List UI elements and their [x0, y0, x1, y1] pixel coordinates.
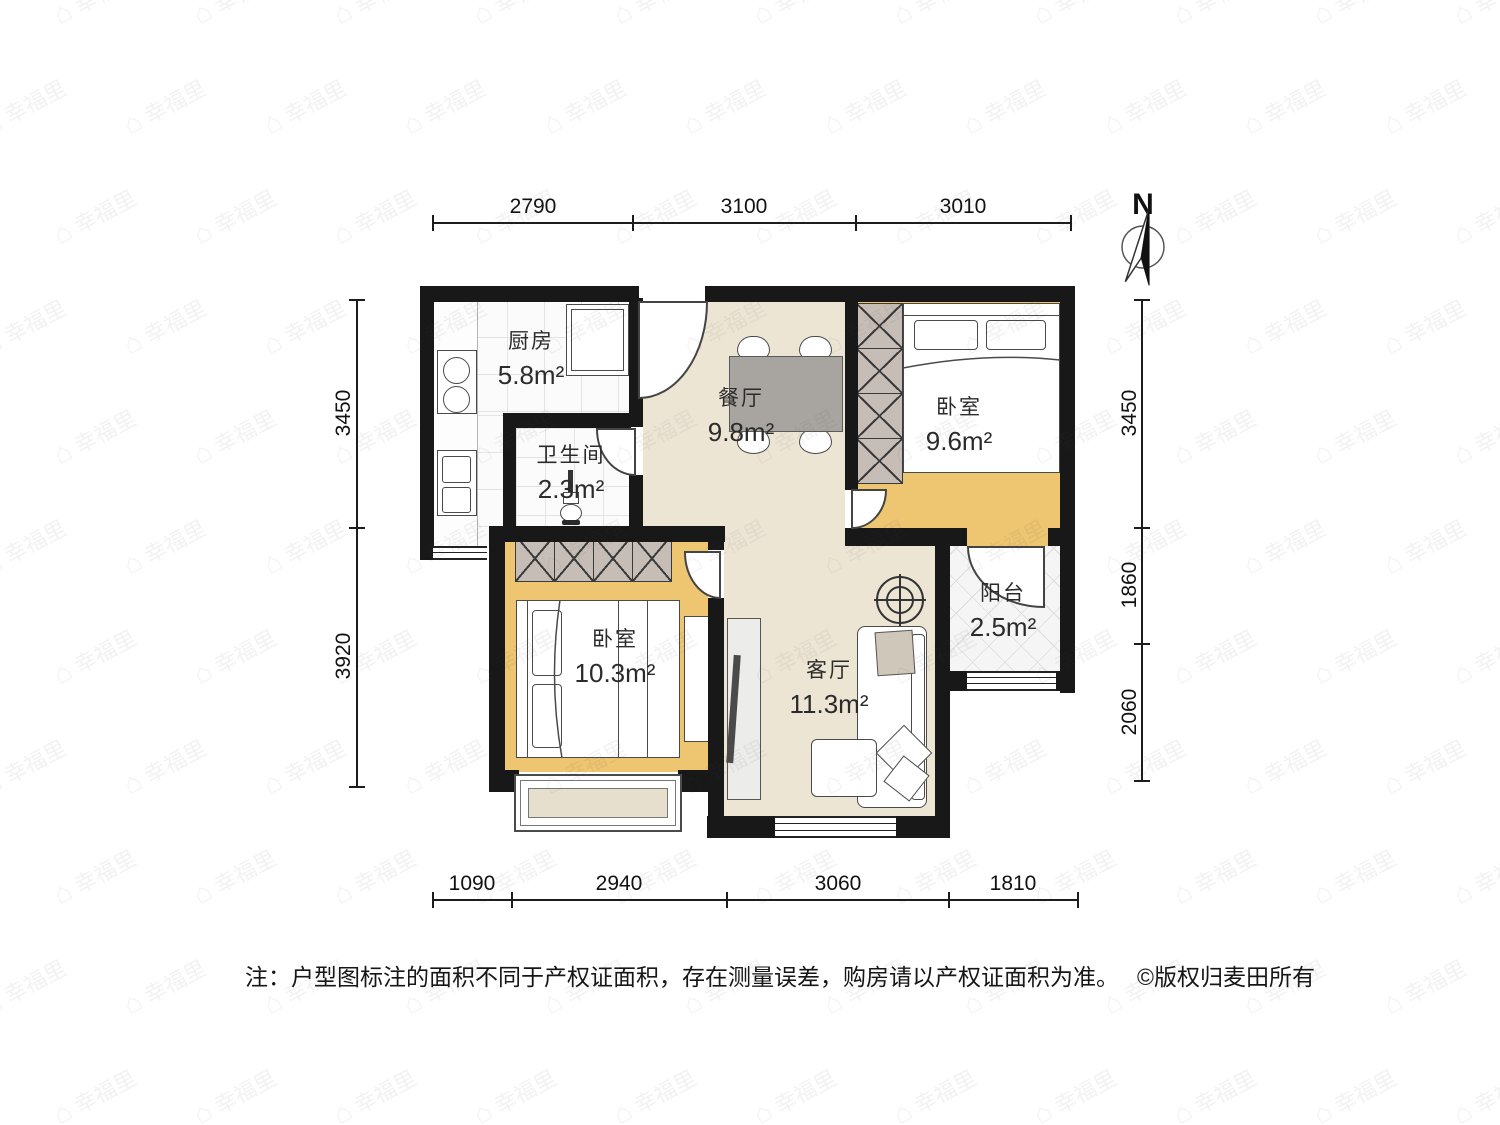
- watermark: ⌂幸福里: [398, 71, 492, 141]
- room-label-living: 客厅 11.3m²: [790, 654, 869, 720]
- watermark: ⌂幸福里: [118, 291, 212, 361]
- watermark: ⌂幸福里: [328, 841, 422, 911]
- dim-value: 3010: [940, 195, 987, 219]
- watermark: ⌂幸福里: [1448, 181, 1500, 251]
- watermark-logo-icon: ⌂: [1309, 437, 1337, 470]
- sink-basin-icon: [442, 487, 471, 513]
- watermark-text: 幸福里: [68, 841, 141, 900]
- room-label-balcony: 阳台 2.5m²: [970, 577, 1036, 643]
- watermark: ⌂幸福里: [608, 181, 702, 251]
- watermark: ⌂幸福里: [48, 401, 142, 471]
- pillow-icon: [532, 610, 562, 676]
- watermark-logo-icon: ⌂: [1099, 327, 1127, 360]
- compass: N: [1122, 188, 1164, 285]
- watermark-text: 幸福里: [1118, 291, 1191, 350]
- watermark-text: 幸福里: [1468, 401, 1500, 460]
- room-name: 餐厅: [718, 382, 764, 412]
- watermark-logo-icon: ⌂: [119, 987, 147, 1020]
- watermark-text: 幸福里: [208, 0, 281, 20]
- watermark: ⌂幸福里: [1168, 401, 1262, 471]
- watermark-logo-icon: ⌂: [1309, 217, 1337, 250]
- wall: [678, 770, 709, 792]
- wall: [707, 816, 775, 838]
- watermark: ⌂幸福里: [538, 71, 632, 141]
- room-label-bathroom: 卫生间 2.3m²: [537, 439, 606, 505]
- dim-line-left: [356, 300, 358, 788]
- watermark-text: 幸福里: [768, 1061, 841, 1120]
- dim-value: 1090: [449, 872, 496, 896]
- dim-value: 3450: [332, 390, 356, 437]
- watermark-logo-icon: ⌂: [0, 767, 7, 800]
- watermark-logo-icon: ⌂: [49, 877, 77, 910]
- watermark-logo-icon: ⌂: [469, 0, 497, 29]
- room-label-bedroom-top: 卧室 9.6m²: [926, 391, 992, 457]
- watermark: ⌂幸福里: [0, 71, 71, 141]
- watermark-text: 幸福里: [348, 841, 421, 900]
- watermark: ⌂幸福里: [1238, 731, 1332, 801]
- watermark-text: 幸福里: [0, 621, 1, 680]
- watermark-text: 幸福里: [278, 291, 351, 350]
- dim-line-bottom: [432, 899, 1079, 901]
- watermark: ⌂幸福里: [1308, 181, 1402, 251]
- dim-tick: [432, 215, 434, 231]
- watermark: ⌂幸福里: [0, 621, 1, 691]
- watermark: ⌂幸福里: [1378, 291, 1472, 361]
- watermark: ⌂幸福里: [748, 0, 842, 31]
- room-area: 10.3m²: [575, 658, 656, 689]
- watermark-text: 幸福里: [1048, 181, 1121, 240]
- watermark-text: 幸福里: [0, 0, 1, 20]
- watermark: ⌂幸福里: [258, 731, 352, 801]
- watermark-logo-icon: ⌂: [1449, 217, 1477, 250]
- watermark-text: 幸福里: [348, 1061, 421, 1120]
- watermark-logo-icon: ⌂: [1169, 877, 1197, 910]
- wall: [845, 298, 858, 490]
- watermark: ⌂幸福里: [328, 1061, 422, 1125]
- living-window: [775, 816, 896, 838]
- watermark-logo-icon: ⌂: [1449, 877, 1477, 910]
- wall: [503, 413, 516, 533]
- disclaimer-note: 注：户型图标注的面积不同于产权证面积，存在测量误差，购房请以产权证面积为准。©版…: [245, 958, 1315, 992]
- watermark: ⌂幸福里: [1308, 841, 1402, 911]
- watermark: ⌂幸福里: [1448, 1061, 1500, 1125]
- watermark: ⌂幸福里: [1448, 401, 1500, 471]
- watermark: ⌂幸福里: [48, 621, 142, 691]
- wall: [845, 528, 967, 546]
- watermark-logo-icon: ⌂: [749, 877, 777, 910]
- watermark: ⌂幸福里: [608, 1061, 702, 1125]
- dim-value: 2060: [1118, 689, 1142, 736]
- watermark: ⌂幸福里: [188, 401, 282, 471]
- watermark: ⌂幸福里: [1238, 511, 1332, 581]
- watermark-text: 幸福里: [0, 951, 71, 1010]
- watermark-logo-icon: ⌂: [609, 1097, 637, 1125]
- watermark: ⌂幸福里: [1308, 621, 1402, 691]
- dim-tick: [632, 215, 634, 231]
- watermark-text: 幸福里: [278, 511, 351, 570]
- watermark-text: 幸福里: [1328, 621, 1401, 680]
- watermark-logo-icon: ⌂: [1449, 1097, 1477, 1125]
- watermark-text: 幸福里: [0, 1061, 1, 1120]
- watermark-logo-icon: ⌂: [0, 987, 7, 1020]
- watermark-text: 幸福里: [0, 291, 71, 350]
- watermark-logo-icon: ⌂: [1379, 107, 1407, 140]
- watermark-logo-icon: ⌂: [329, 0, 357, 29]
- watermark-text: 幸福里: [0, 511, 71, 570]
- dim-value: 3060: [815, 872, 862, 896]
- watermark-logo-icon: ⌂: [1239, 547, 1267, 580]
- watermark-logo-icon: ⌂: [539, 107, 567, 140]
- watermark-logo-icon: ⌂: [819, 107, 847, 140]
- watermark: ⌂幸福里: [958, 731, 1052, 801]
- sink-basin-icon: [442, 456, 471, 483]
- bed-headboard: [903, 303, 1060, 316]
- watermark-text: 幸福里: [1398, 511, 1471, 570]
- wardrobe-cell: [554, 535, 594, 582]
- watermark-text: 幸福里: [348, 401, 421, 460]
- watermark: ⌂幸福里: [398, 731, 492, 801]
- watermark: ⌂幸福里: [188, 0, 282, 31]
- watermark-logo-icon: ⌂: [259, 327, 287, 360]
- watermark-text: 幸福里: [348, 621, 421, 680]
- room-name: 卧室: [592, 623, 638, 653]
- bed-headboard: [516, 600, 528, 758]
- watermark: ⌂幸福里: [188, 841, 282, 911]
- watermark: ⌂幸福里: [1098, 731, 1192, 801]
- watermark: ⌂幸福里: [48, 181, 142, 251]
- watermark-logo-icon: ⌂: [49, 0, 77, 29]
- watermark-logo-icon: ⌂: [1029, 1097, 1057, 1125]
- watermark-text: 幸福里: [908, 841, 981, 900]
- toilet-base-icon: [562, 520, 580, 525]
- watermark-text: 幸福里: [1398, 291, 1471, 350]
- watermark: ⌂幸福里: [1448, 621, 1500, 691]
- wardrobe-cell: [856, 348, 903, 394]
- watermark: ⌂幸福里: [1168, 1061, 1262, 1125]
- watermark-logo-icon: ⌂: [749, 1097, 777, 1125]
- watermark-logo-icon: ⌂: [1449, 437, 1477, 470]
- room-label-bedroom-left: 卧室 10.3m²: [575, 623, 656, 689]
- watermark-text: 幸福里: [1258, 511, 1331, 570]
- dim-tick: [1134, 527, 1150, 529]
- watermark: ⌂幸福里: [1378, 951, 1472, 1021]
- watermark-text: 幸福里: [1468, 181, 1500, 240]
- watermark-text: 幸福里: [1118, 71, 1191, 130]
- watermark-logo-icon: ⌂: [1169, 0, 1197, 29]
- watermark: ⌂幸福里: [1308, 1061, 1402, 1125]
- watermark-logo-icon: ⌂: [0, 107, 7, 140]
- watermark-text: 幸福里: [138, 291, 211, 350]
- watermark: ⌂幸福里: [0, 731, 71, 801]
- watermark-text: 幸福里: [68, 401, 141, 460]
- watermark-logo-icon: ⌂: [189, 1097, 217, 1125]
- dim-value: 3100: [721, 195, 768, 219]
- dim-tick: [511, 892, 513, 908]
- room-area: 11.3m²: [790, 689, 869, 720]
- watermark-logo-icon: ⌂: [469, 1097, 497, 1125]
- kitchen-window: [433, 546, 487, 560]
- watermark-logo-icon: ⌂: [399, 107, 427, 140]
- watermark: ⌂幸福里: [328, 181, 422, 251]
- watermark: ⌂幸福里: [118, 731, 212, 801]
- wall: [708, 598, 724, 832]
- watermark-logo-icon: ⌂: [1379, 327, 1407, 360]
- watermark-logo-icon: ⌂: [189, 657, 217, 690]
- watermark: ⌂幸福里: [188, 181, 282, 251]
- wall: [629, 298, 643, 427]
- watermark-logo-icon: ⌂: [679, 107, 707, 140]
- watermark-text: 幸福里: [908, 0, 981, 20]
- watermark-logo-icon: ⌂: [49, 657, 77, 690]
- watermark-text: 幸福里: [1258, 291, 1331, 350]
- watermark: ⌂幸福里: [608, 0, 702, 31]
- watermark-text: 幸福里: [1398, 731, 1471, 790]
- watermark-text: 幸福里: [68, 181, 141, 240]
- watermark-logo-icon: ⌂: [329, 1097, 357, 1125]
- dim-tick: [1070, 215, 1072, 231]
- wall: [503, 526, 725, 542]
- watermark-text: 幸福里: [208, 1061, 281, 1120]
- watermark-text: 幸福里: [208, 401, 281, 460]
- watermark-logo-icon: ⌂: [889, 877, 917, 910]
- watermark: ⌂幸福里: [118, 511, 212, 581]
- compass-needle-west: [1125, 207, 1149, 284]
- watermark-text: 幸福里: [0, 71, 71, 130]
- watermark-logo-icon: ⌂: [1099, 767, 1127, 800]
- watermark-text: 幸福里: [1048, 841, 1121, 900]
- watermark-logo-icon: ⌂: [609, 0, 637, 29]
- watermark-text: 幸福里: [138, 951, 211, 1010]
- watermark-logo-icon: ⌂: [329, 437, 357, 470]
- watermark-logo-icon: ⌂: [1029, 0, 1057, 29]
- watermark: ⌂幸福里: [1448, 841, 1500, 911]
- wardrobe-cell: [856, 393, 903, 439]
- watermark-logo-icon: ⌂: [1309, 657, 1337, 690]
- watermark-logo-icon: ⌂: [1449, 657, 1477, 690]
- compass-needle-east: [1137, 208, 1161, 285]
- wall: [935, 671, 967, 691]
- watermark-text: 幸福里: [698, 71, 771, 130]
- watermark-text: 幸福里: [978, 731, 1051, 790]
- watermark-text: 幸福里: [1188, 0, 1261, 20]
- watermark-text: 幸福里: [348, 181, 421, 240]
- pillow-icon: [914, 320, 978, 350]
- room-name: 厨房: [508, 325, 554, 355]
- watermark-text: 幸福里: [1398, 71, 1471, 130]
- watermark-logo-icon: ⌂: [959, 767, 987, 800]
- watermark: ⌂幸福里: [1308, 401, 1402, 471]
- watermark: ⌂幸福里: [0, 181, 1, 251]
- watermark: ⌂幸福里: [1028, 1061, 1122, 1125]
- watermark-text: 幸福里: [768, 0, 841, 20]
- watermark-text: 幸福里: [68, 1061, 141, 1120]
- watermark-text: 幸福里: [488, 841, 561, 900]
- watermark-logo-icon: ⌂: [1449, 0, 1477, 29]
- watermark-logo-icon: ⌂: [119, 107, 147, 140]
- watermark: ⌂幸福里: [1028, 181, 1122, 251]
- watermark-logo-icon: ⌂: [49, 437, 77, 470]
- wardrobe-cell: [515, 535, 555, 582]
- dim-tick: [1134, 780, 1150, 782]
- watermark-logo-icon: ⌂: [1239, 767, 1267, 800]
- watermark: ⌂幸福里: [188, 621, 282, 691]
- stove-burner-icon: [443, 386, 470, 413]
- watermark: ⌂幸福里: [1378, 731, 1472, 801]
- watermark-text: 幸福里: [628, 1061, 701, 1120]
- watermark-logo-icon: ⌂: [1309, 877, 1337, 910]
- watermark-logo-icon: ⌂: [1169, 217, 1197, 250]
- room-area: 2.5m²: [970, 612, 1036, 643]
- watermark: ⌂幸福里: [1098, 71, 1192, 141]
- watermark: ⌂幸福里: [818, 71, 912, 141]
- copyright-text: ©版权归麦田所有: [1137, 964, 1315, 990]
- dim-tick: [349, 299, 365, 301]
- watermark-text: 幸福里: [208, 841, 281, 900]
- wall: [489, 526, 505, 792]
- wardrobe-cell: [856, 438, 903, 484]
- watermark-text: 幸福里: [488, 1061, 561, 1120]
- watermark-logo-icon: ⌂: [189, 0, 217, 29]
- wall: [503, 413, 631, 428]
- watermark: ⌂幸福里: [0, 401, 1, 471]
- watermark-text: 幸福里: [1258, 71, 1331, 130]
- watermark-logo-icon: ⌂: [1239, 107, 1267, 140]
- watermark: ⌂幸福里: [1028, 0, 1122, 31]
- watermark-text: 幸福里: [418, 71, 491, 130]
- watermark: ⌂幸福里: [1378, 511, 1472, 581]
- watermark-text: 幸福里: [278, 731, 351, 790]
- watermark-text: 幸福里: [138, 731, 211, 790]
- watermark-text: 幸福里: [1398, 951, 1471, 1010]
- watermark-text: 幸福里: [628, 0, 701, 20]
- watermark-text: 幸福里: [768, 181, 841, 240]
- balcony-threshold: [965, 528, 1048, 546]
- watermark-text: 幸福里: [1048, 0, 1121, 20]
- watermark-text: 幸福里: [838, 71, 911, 130]
- watermark-logo-icon: ⌂: [189, 877, 217, 910]
- wardrobe-cell: [632, 535, 672, 582]
- watermark-text: 幸福里: [488, 0, 561, 20]
- room-area: 9.8m²: [708, 417, 774, 448]
- watermark-text: 幸福里: [348, 0, 421, 20]
- watermark-text: 幸福里: [1188, 401, 1261, 460]
- room-label-kitchen: 厨房 5.8m²: [498, 325, 564, 391]
- watermark: ⌂幸福里: [888, 0, 982, 31]
- dim-tick: [948, 892, 950, 908]
- watermark-text: 幸福里: [1328, 401, 1401, 460]
- dim-value: 3450: [1118, 390, 1142, 437]
- watermark-logo-icon: ⌂: [1099, 107, 1127, 140]
- watermark-text: 幸福里: [1188, 621, 1261, 680]
- wall: [420, 286, 434, 560]
- pillow-icon: [986, 320, 1046, 350]
- watermark-text: 幸福里: [1188, 181, 1261, 240]
- dim-tick: [349, 527, 365, 529]
- dim-tick: [1134, 299, 1150, 301]
- watermark-text: 幸福里: [1188, 1061, 1261, 1120]
- room-area: 5.8m²: [498, 360, 564, 391]
- sofa-chaise: [811, 739, 877, 797]
- watermark-text: 幸福里: [138, 511, 211, 570]
- watermark-text: 幸福里: [1468, 1061, 1500, 1120]
- watermark: ⌂幸福里: [0, 841, 1, 911]
- dim-value: 2940: [596, 872, 643, 896]
- watermark: ⌂幸福里: [0, 291, 71, 361]
- watermark-logo-icon: ⌂: [119, 327, 147, 360]
- watermark: ⌂幸福里: [1168, 181, 1262, 251]
- floorplan-canvas: N 厨房 5.8m² 餐厅 9.8m² 卧室 9.6m² 卫生间 2.3m² 卧…: [0, 0, 1500, 1125]
- watermark: ⌂幸福里: [1168, 841, 1262, 911]
- watermark: ⌂幸福里: [678, 71, 772, 141]
- watermark: ⌂幸福里: [1168, 0, 1262, 31]
- watermark-logo-icon: ⌂: [749, 0, 777, 29]
- watermark: ⌂幸福里: [188, 1061, 282, 1125]
- dim-tick: [432, 892, 434, 908]
- watermark-text: 幸福里: [1468, 841, 1500, 900]
- watermark-text: 幸福里: [0, 841, 1, 900]
- watermark-logo-icon: ⌂: [0, 327, 7, 360]
- watermark-text: 幸福里: [1118, 731, 1191, 790]
- room-name: 阳台: [980, 577, 1026, 607]
- dim-tick: [1134, 643, 1150, 645]
- watermark: ⌂幸福里: [748, 1061, 842, 1125]
- watermark-logo-icon: ⌂: [259, 547, 287, 580]
- wall: [420, 286, 639, 302]
- dim-line-top: [432, 222, 1072, 224]
- watermark: ⌂幸福里: [48, 841, 142, 911]
- watermark: ⌂幸福里: [1238, 71, 1332, 141]
- watermark-text: 幸福里: [0, 731, 71, 790]
- bay-window-sill: [528, 788, 668, 818]
- watermark: ⌂幸福里: [1098, 511, 1192, 581]
- watermark-logo-icon: ⌂: [329, 877, 357, 910]
- nightstand: [684, 616, 709, 742]
- watermark-text: 幸福里: [1468, 0, 1500, 20]
- watermark-logo-icon: ⌂: [399, 767, 427, 800]
- watermark-logo-icon: ⌂: [259, 767, 287, 800]
- watermark: ⌂幸福里: [1448, 0, 1500, 31]
- watermark: ⌂幸福里: [0, 1061, 1, 1125]
- watermark: ⌂幸福里: [0, 951, 71, 1021]
- dim-tick: [726, 892, 728, 908]
- wardrobe-cell: [856, 303, 903, 349]
- room-area: 2.3m²: [538, 474, 604, 505]
- watermark: ⌂幸福里: [258, 291, 352, 361]
- watermark: ⌂幸福里: [48, 1061, 142, 1125]
- wall: [1060, 286, 1075, 693]
- wardrobe-cell: [593, 535, 633, 582]
- watermark-logo-icon: ⌂: [189, 217, 217, 250]
- watermark-logo-icon: ⌂: [1239, 327, 1267, 360]
- room-name: 卫生间: [537, 439, 606, 469]
- dim-tick: [855, 215, 857, 231]
- watermark: ⌂幸福里: [48, 0, 142, 31]
- dim-tick: [349, 786, 365, 788]
- watermark-text: 幸福里: [1328, 1061, 1401, 1120]
- watermark-logo-icon: ⌂: [1379, 767, 1407, 800]
- note-text: 注：户型图标注的面积不同于产权证面积，存在测量误差，购房请以产权证面积为准。: [245, 964, 1119, 990]
- dim-tick: [1077, 892, 1079, 908]
- dim-value: 2790: [510, 195, 557, 219]
- watermark-logo-icon: ⌂: [189, 437, 217, 470]
- watermark-logo-icon: ⌂: [0, 547, 7, 580]
- watermark: ⌂幸福里: [1098, 291, 1192, 361]
- watermark-text: 幸福里: [908, 1061, 981, 1120]
- dim-value: 3920: [332, 633, 356, 680]
- watermark: ⌂幸福里: [258, 511, 352, 581]
- watermark-logo-icon: ⌂: [1169, 1097, 1197, 1125]
- watermark: ⌂幸福里: [118, 71, 212, 141]
